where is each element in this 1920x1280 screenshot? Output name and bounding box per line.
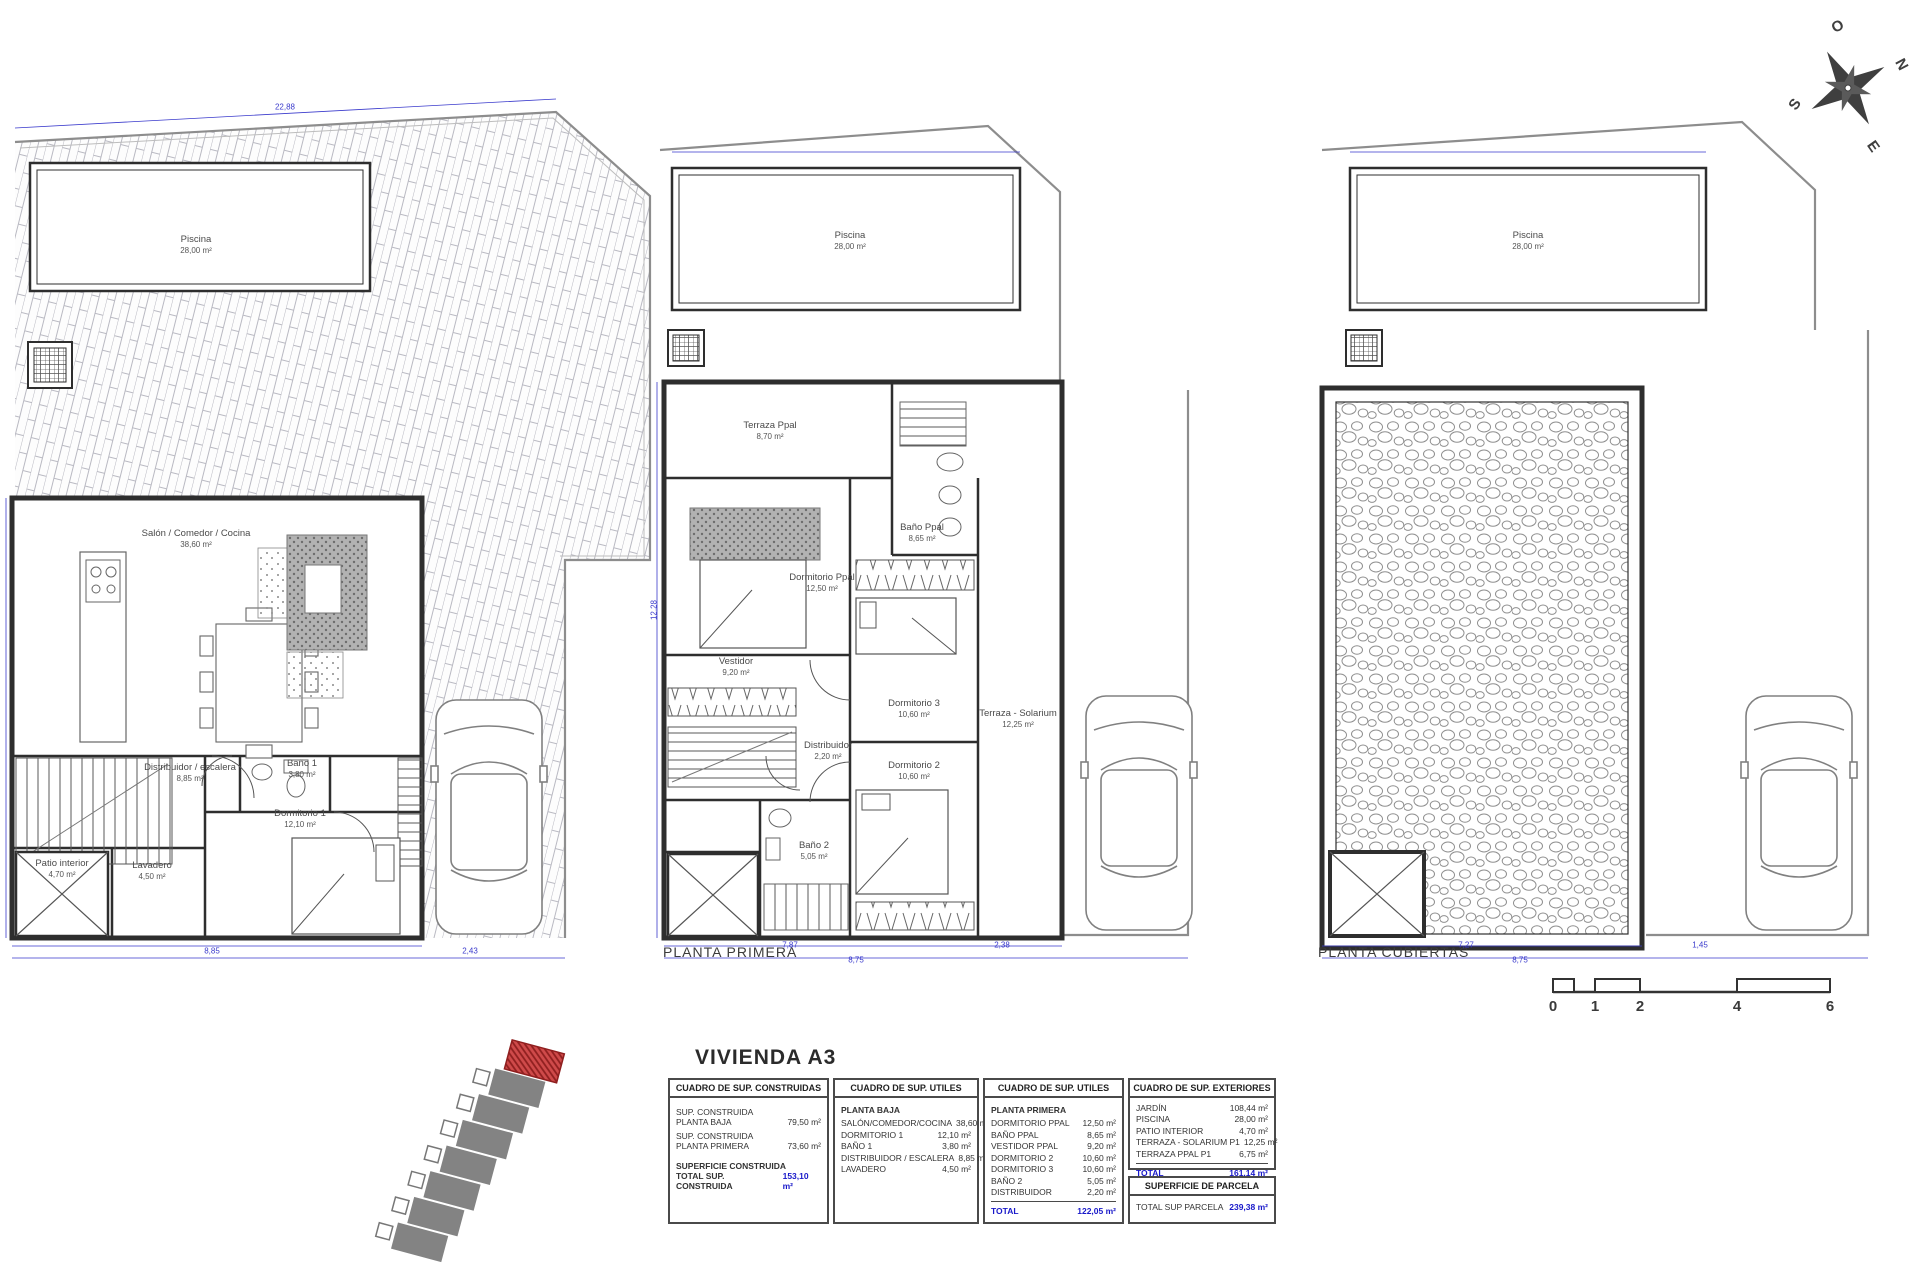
shaft-box-primera	[668, 854, 758, 936]
table-row: DORMITORIO 112,10 m²	[841, 1130, 971, 1140]
wardrobe-vestidor	[668, 688, 796, 716]
table-row: DORMITORIO PPAL12,50 m²	[991, 1118, 1116, 1128]
wardrobe-dorm3	[856, 560, 974, 590]
table-row: DORMITORIO 210,60 m²	[991, 1153, 1116, 1163]
car-icon-primera	[1081, 696, 1197, 930]
table-total-row: TOTAL122,05 m²	[991, 1206, 1116, 1216]
table-section-title: PLANTA BAJA	[841, 1105, 971, 1115]
table-row: JARDÍN108,44 m²	[1136, 1103, 1268, 1113]
table-header: SUPERFICIE DE PARCELA	[1130, 1178, 1274, 1196]
car-icon-baja	[431, 700, 547, 934]
shaft-box-cubiertas	[1330, 852, 1424, 936]
table-row: DISTRIBUIDOR2,20 m²	[991, 1187, 1116, 1197]
pool-baja	[30, 163, 370, 291]
bed-dormitorio-ppal	[690, 508, 820, 648]
table-exteriores: CUADRO DE SUP. EXTERIORES JARDÍN108,44 m…	[1128, 1078, 1276, 1170]
table-sup-construida: CUADRO DE SUP. CONSTRUIDAS SUP. CONSTRUI…	[668, 1078, 829, 1224]
table-row: PATIO INTERIOR4,70 m²	[1136, 1126, 1268, 1136]
plan-planta-cubiertas	[1322, 122, 1868, 958]
table-row: BAÑO PPAL8,65 m²	[991, 1130, 1116, 1140]
table-row: SUP. CONSTRUIDA PLANTA BAJA79,50 m²	[676, 1107, 821, 1127]
table-row: BAÑO 13,80 m²	[841, 1141, 971, 1151]
plan-planta-primera	[657, 126, 1197, 958]
table-parcela: SUPERFICIE DE PARCELA TOTAL SUP PARCELA …	[1128, 1176, 1276, 1224]
table-row: DORMITORIO 310,60 m²	[991, 1164, 1116, 1174]
drain-grate-baja	[28, 342, 72, 388]
kitchen-island	[80, 552, 126, 742]
bed-dormitorio3	[856, 598, 956, 654]
table-row: TERRAZA - SOLARIUM P112,25 m²	[1136, 1137, 1268, 1147]
table-header: CUADRO DE SUP. UTILES	[985, 1080, 1122, 1098]
table-header: CUADRO DE SUP. UTILES	[835, 1080, 977, 1098]
table-row: LAVADERO4,50 m²	[841, 1164, 971, 1174]
pool-cubiertas	[1350, 168, 1706, 310]
table-section-title: PLANTA PRIMERA	[991, 1105, 1116, 1115]
pool-primera	[672, 168, 1020, 310]
architectural-sheet: { "sheet": { "title": "VIVIENDA A3" }, "…	[0, 0, 1920, 1280]
compass-rose-icon	[1791, 31, 1906, 146]
closet-baja	[398, 758, 422, 866]
patio-interior-box	[16, 852, 108, 936]
car-icon-cubiertas	[1741, 696, 1857, 930]
drain-grate-primera	[668, 330, 704, 366]
table-row: VESTIDOR PPAL9,20 m²	[991, 1141, 1116, 1151]
table-row: PISCINA28,00 m²	[1136, 1114, 1268, 1124]
table-row: BAÑO 25,05 m²	[991, 1176, 1116, 1186]
table-utiles-baja: CUADRO DE SUP. UTILES PLANTA BAJA SALÓN/…	[833, 1078, 979, 1224]
table-header: CUADRO DE SUP. CONSTRUIDAS	[670, 1080, 827, 1098]
drain-grate-cubiertas	[1346, 330, 1382, 366]
bed-dormitorio1	[292, 838, 400, 934]
table-row: SALÓN/COMEDOR/COCINA38,60 m²	[841, 1118, 971, 1128]
table-row: DISTRIBUIDOR / ESCALERA8,85 m²	[841, 1153, 971, 1163]
site-location-key	[374, 1019, 565, 1279]
stairs-baja	[16, 758, 172, 864]
table-footer: SUPERFICIE CONSTRUIDA TOTAL SUP. CONSTRU…	[676, 1161, 821, 1191]
table-row: TERRAZA PPAL P16,75 m²	[1136, 1149, 1268, 1159]
plan-planta-baja	[6, 99, 650, 958]
table-header: CUADRO DE SUP. EXTERIORES	[1130, 1080, 1274, 1098]
table-row: SUP. CONSTRUIDA PLANTA PRIMERA73,60 m²	[676, 1131, 821, 1151]
scale-bar	[1553, 979, 1830, 992]
table-utiles-primera: CUADRO DE SUP. UTILES PLANTA PRIMERA DOR…	[983, 1078, 1124, 1224]
table-row: TOTAL SUP PARCELA 239,38 m²	[1136, 1202, 1268, 1212]
